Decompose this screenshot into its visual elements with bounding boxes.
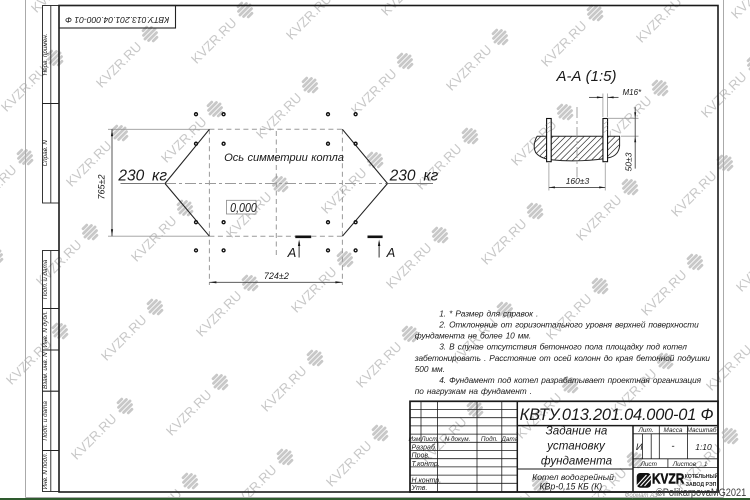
svg-text:А-А (1:5): А-А (1:5) [555,68,616,85]
svg-text:2. Отклонение от горизонтальн: 2. Отклонение от горизонтального уровня … [438,320,699,330]
svg-text:Пров.: Пров. [412,453,431,460]
svg-text:160±3: 160±3 [566,176,590,186]
svg-text:Формат А3: Формат А3 [625,493,658,499]
svg-text:1. * Размер для справок .: 1. * Размер для справок . [439,308,538,318]
svg-text:Лист: Лист [420,436,438,443]
svg-text:N докум.: N докум. [445,435,471,443]
svg-text:Масса: Масса [664,427,683,434]
svg-text:А: А [287,245,297,260]
svg-text:установку: установку [546,439,606,452]
svg-text:Утв.: Утв. [411,485,428,492]
svg-text:Ось симметрии котла: Ось симметрии котла [224,152,344,164]
svg-text:Дата: Дата [500,436,518,443]
svg-text:Взам. инв. N: Взам. инв. N [42,352,49,389]
svg-text:-: - [671,441,674,452]
svg-text:Подп. и дата: Подп. и дата [41,401,49,441]
svg-text:Подп. и дата: Подп. и дата [41,259,49,299]
svg-text:KVZR: KVZR [652,470,684,487]
svg-text:Лит.: Лит. [638,427,654,434]
svg-text:Инв. N дубл.: Инв. N дубл. [41,311,49,347]
svg-text:765±2: 765±2 [97,175,107,200]
svg-text:Подп.: Подп. [481,435,498,443]
svg-text:И: И [636,442,643,453]
svg-text:Инв. N подл.: Инв. N подл. [41,453,49,490]
svg-text:Задание на: Задание на [546,424,608,437]
svg-text:КОТЕЛЬНЫЙ: КОТЕЛЬНЫЙ [685,472,719,480]
svg-text:КВТУ.013.201.04.000-01 Ф: КВТУ.013.201.04.000-01 Ф [65,15,169,25]
svg-text:Разраб.: Разраб. [412,444,437,452]
svg-text:забетонировать . Расстояние о: забетонировать . Расстояние от осей коло… [414,353,711,363]
svg-text:230 кг: 230 кг [389,167,439,184]
svg-text:Котел водогрейный: Котел водогрейный [532,472,614,482]
svg-text:0,000: 0,000 [230,200,257,215]
svg-text:500 мм.: 500 мм. [415,364,445,374]
svg-text:Т.контр.: Т.контр. [412,461,440,468]
svg-text:А: А [386,245,396,260]
svg-text:50±3: 50±3 [624,152,634,171]
svg-text:Листов: Листов [672,461,697,468]
svg-text:3. В случае отсутствия бетонн: 3. В случае отсутствия бетонного пола пл… [439,342,687,352]
svg-text:1: 1 [704,461,708,468]
svg-text:1:10: 1:10 [695,442,712,452]
svg-text:КВТУ.013.201.04.000-01 Ф: КВТУ.013.201.04.000-01 Ф [520,406,714,424]
svg-text:фундамента не более 10 мм.: фундамента не более 10 мм. [415,331,531,341]
svg-text:4. Фундамент под котел разраб: 4. Фундамент под котел разрабатывает про… [439,375,701,385]
svg-text:Лист: Лист [639,461,657,468]
svg-text:©PolikarpovaMG2021: ©PolikarpovaMG2021 [656,487,747,499]
svg-text:Масштаб: Масштаб [687,426,717,434]
svg-text:Справ. N: Справ. N [42,140,49,167]
svg-text:по нагрузкам на фундамент .: по нагрузкам на фундамент . [415,386,532,396]
svg-text:М16*: М16* [622,88,642,97]
svg-text:230 кг: 230 кг [117,167,167,184]
svg-text:Перв. примен.: Перв. примен. [42,34,49,76]
svg-text:КВр-0,15 КБ (К): КВр-0,15 КБ (К) [539,482,602,492]
svg-text:Н.контр.: Н.контр. [412,477,442,484]
svg-text:Изм.: Изм. [408,436,422,443]
svg-text:724±2: 724±2 [264,271,289,281]
svg-text:фундамента: фундамента [541,454,613,467]
